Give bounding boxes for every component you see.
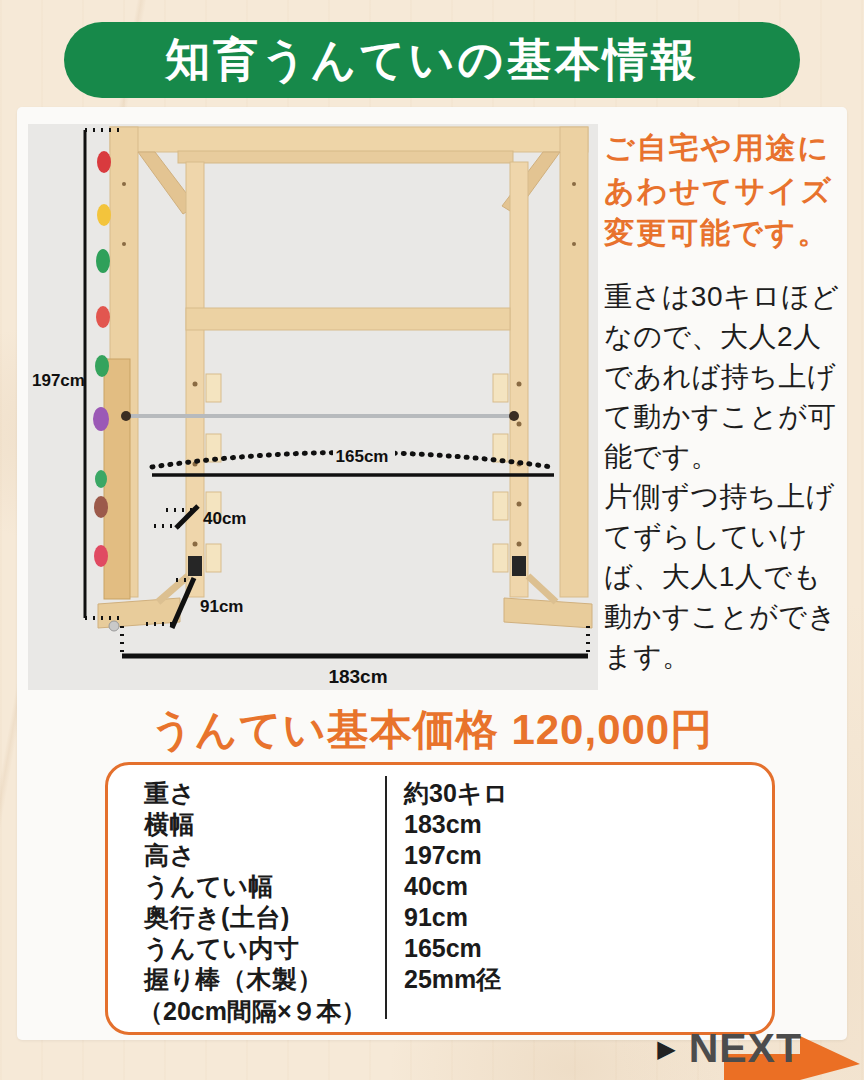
metal-bar-left-mount (121, 411, 131, 421)
spec-table-divider (385, 776, 387, 1019)
right-foot (504, 598, 592, 628)
spec-value: 197cm (385, 841, 482, 870)
table-row: 握り棒（木製） 25mm径 (108, 964, 772, 995)
spec-label: うんてい内寸 (108, 932, 385, 965)
side-description-column: ご自宅や用途にあわせてサイズ変更可能です。 重さは30キロほどなので、大人2人で… (604, 127, 846, 677)
left-bracket-plate (188, 556, 202, 576)
dim-total-width-label: 183cm (328, 666, 387, 687)
next-text: NEXT (689, 1025, 802, 1072)
spec-value: 約30キロ (385, 777, 508, 810)
spec-value: 165cm (385, 934, 482, 963)
spec-value: 25mm径 (385, 963, 501, 996)
spec-label: 奥行き(土台) (108, 901, 385, 934)
rung-blocks (206, 374, 508, 572)
dim-height-label: 197cm (32, 371, 85, 390)
left-inner-post (186, 162, 204, 597)
spec-label: 横幅 (108, 808, 385, 841)
table-row: うんてい幅 40cm (108, 871, 772, 902)
table-row: 横幅 183cm (108, 809, 772, 840)
weight-paragraph-2: 片側ずつ持ち上げてずらしていけば、大人1人でも動かすことができます。 (604, 477, 846, 677)
dim-rung-width-label: 40cm (203, 509, 246, 528)
size-customizable-note: ご自宅や用途にあわせてサイズ変更可能です。 (604, 127, 846, 255)
monkey-bars-diagram: 197cm 165cm 40cm 91cm 183cm (28, 124, 598, 690)
page-title: 知育うんていの基本情報 (165, 30, 698, 90)
table-row: 奥行き(土台) 91cm (108, 902, 772, 933)
mid-crossbeam (186, 308, 510, 330)
table-row: 重さ 約30キロ (108, 778, 772, 809)
next-button[interactable]: ▶ NEXT (634, 1000, 864, 1080)
right-outer-post (560, 127, 588, 597)
weight-description: 重さは30キロほどなので、大人2人であれば持ち上げて動かすことが可能です。 片側… (604, 277, 846, 677)
spec-label: 握り棒（木製） (108, 963, 385, 996)
metal-bar-right-mount (509, 411, 519, 421)
spec-value: 40cm (385, 872, 468, 901)
metal-bar (128, 414, 512, 418)
right-inner-post (510, 162, 528, 597)
dim-inner-width-label: 165cm (336, 447, 389, 466)
weight-paragraph-1: 重さは30キロほどなので、大人2人であれば持ち上げて動かすことが可能です。 (604, 277, 846, 477)
spec-value: 91cm (385, 903, 468, 932)
dim-base-depth-label: 91cm (200, 597, 243, 616)
top-sub-beam (178, 151, 513, 163)
caster-wheel (109, 621, 119, 631)
spec-table: 重さ 約30キロ 横幅 183cm 高さ 197cm うんてい幅 40cm 奥行… (105, 762, 775, 1035)
wood-frame (98, 127, 592, 631)
table-row: 高さ 197cm (108, 840, 772, 871)
spec-value: 183cm (385, 810, 482, 839)
spec-label: うんてい幅 (108, 870, 385, 903)
price-heading: うんてい基本価格 120,000円 (17, 702, 847, 758)
table-row: うんてい内寸 165cm (108, 933, 772, 964)
right-bracket-plate (512, 556, 526, 576)
product-diagram-panel: 197cm 165cm 40cm 91cm 183cm (28, 124, 598, 690)
page-title-banner: 知育うんていの基本情報 (64, 22, 800, 98)
top-beam (110, 127, 588, 152)
climbing-board (104, 359, 130, 599)
spec-label: 重さ (108, 777, 385, 810)
spec-label: 高さ (108, 839, 385, 872)
next-label-group: ▶ NEXT (657, 1025, 802, 1072)
right-foot-brace (528, 576, 556, 602)
play-icon: ▶ (657, 1037, 676, 1061)
